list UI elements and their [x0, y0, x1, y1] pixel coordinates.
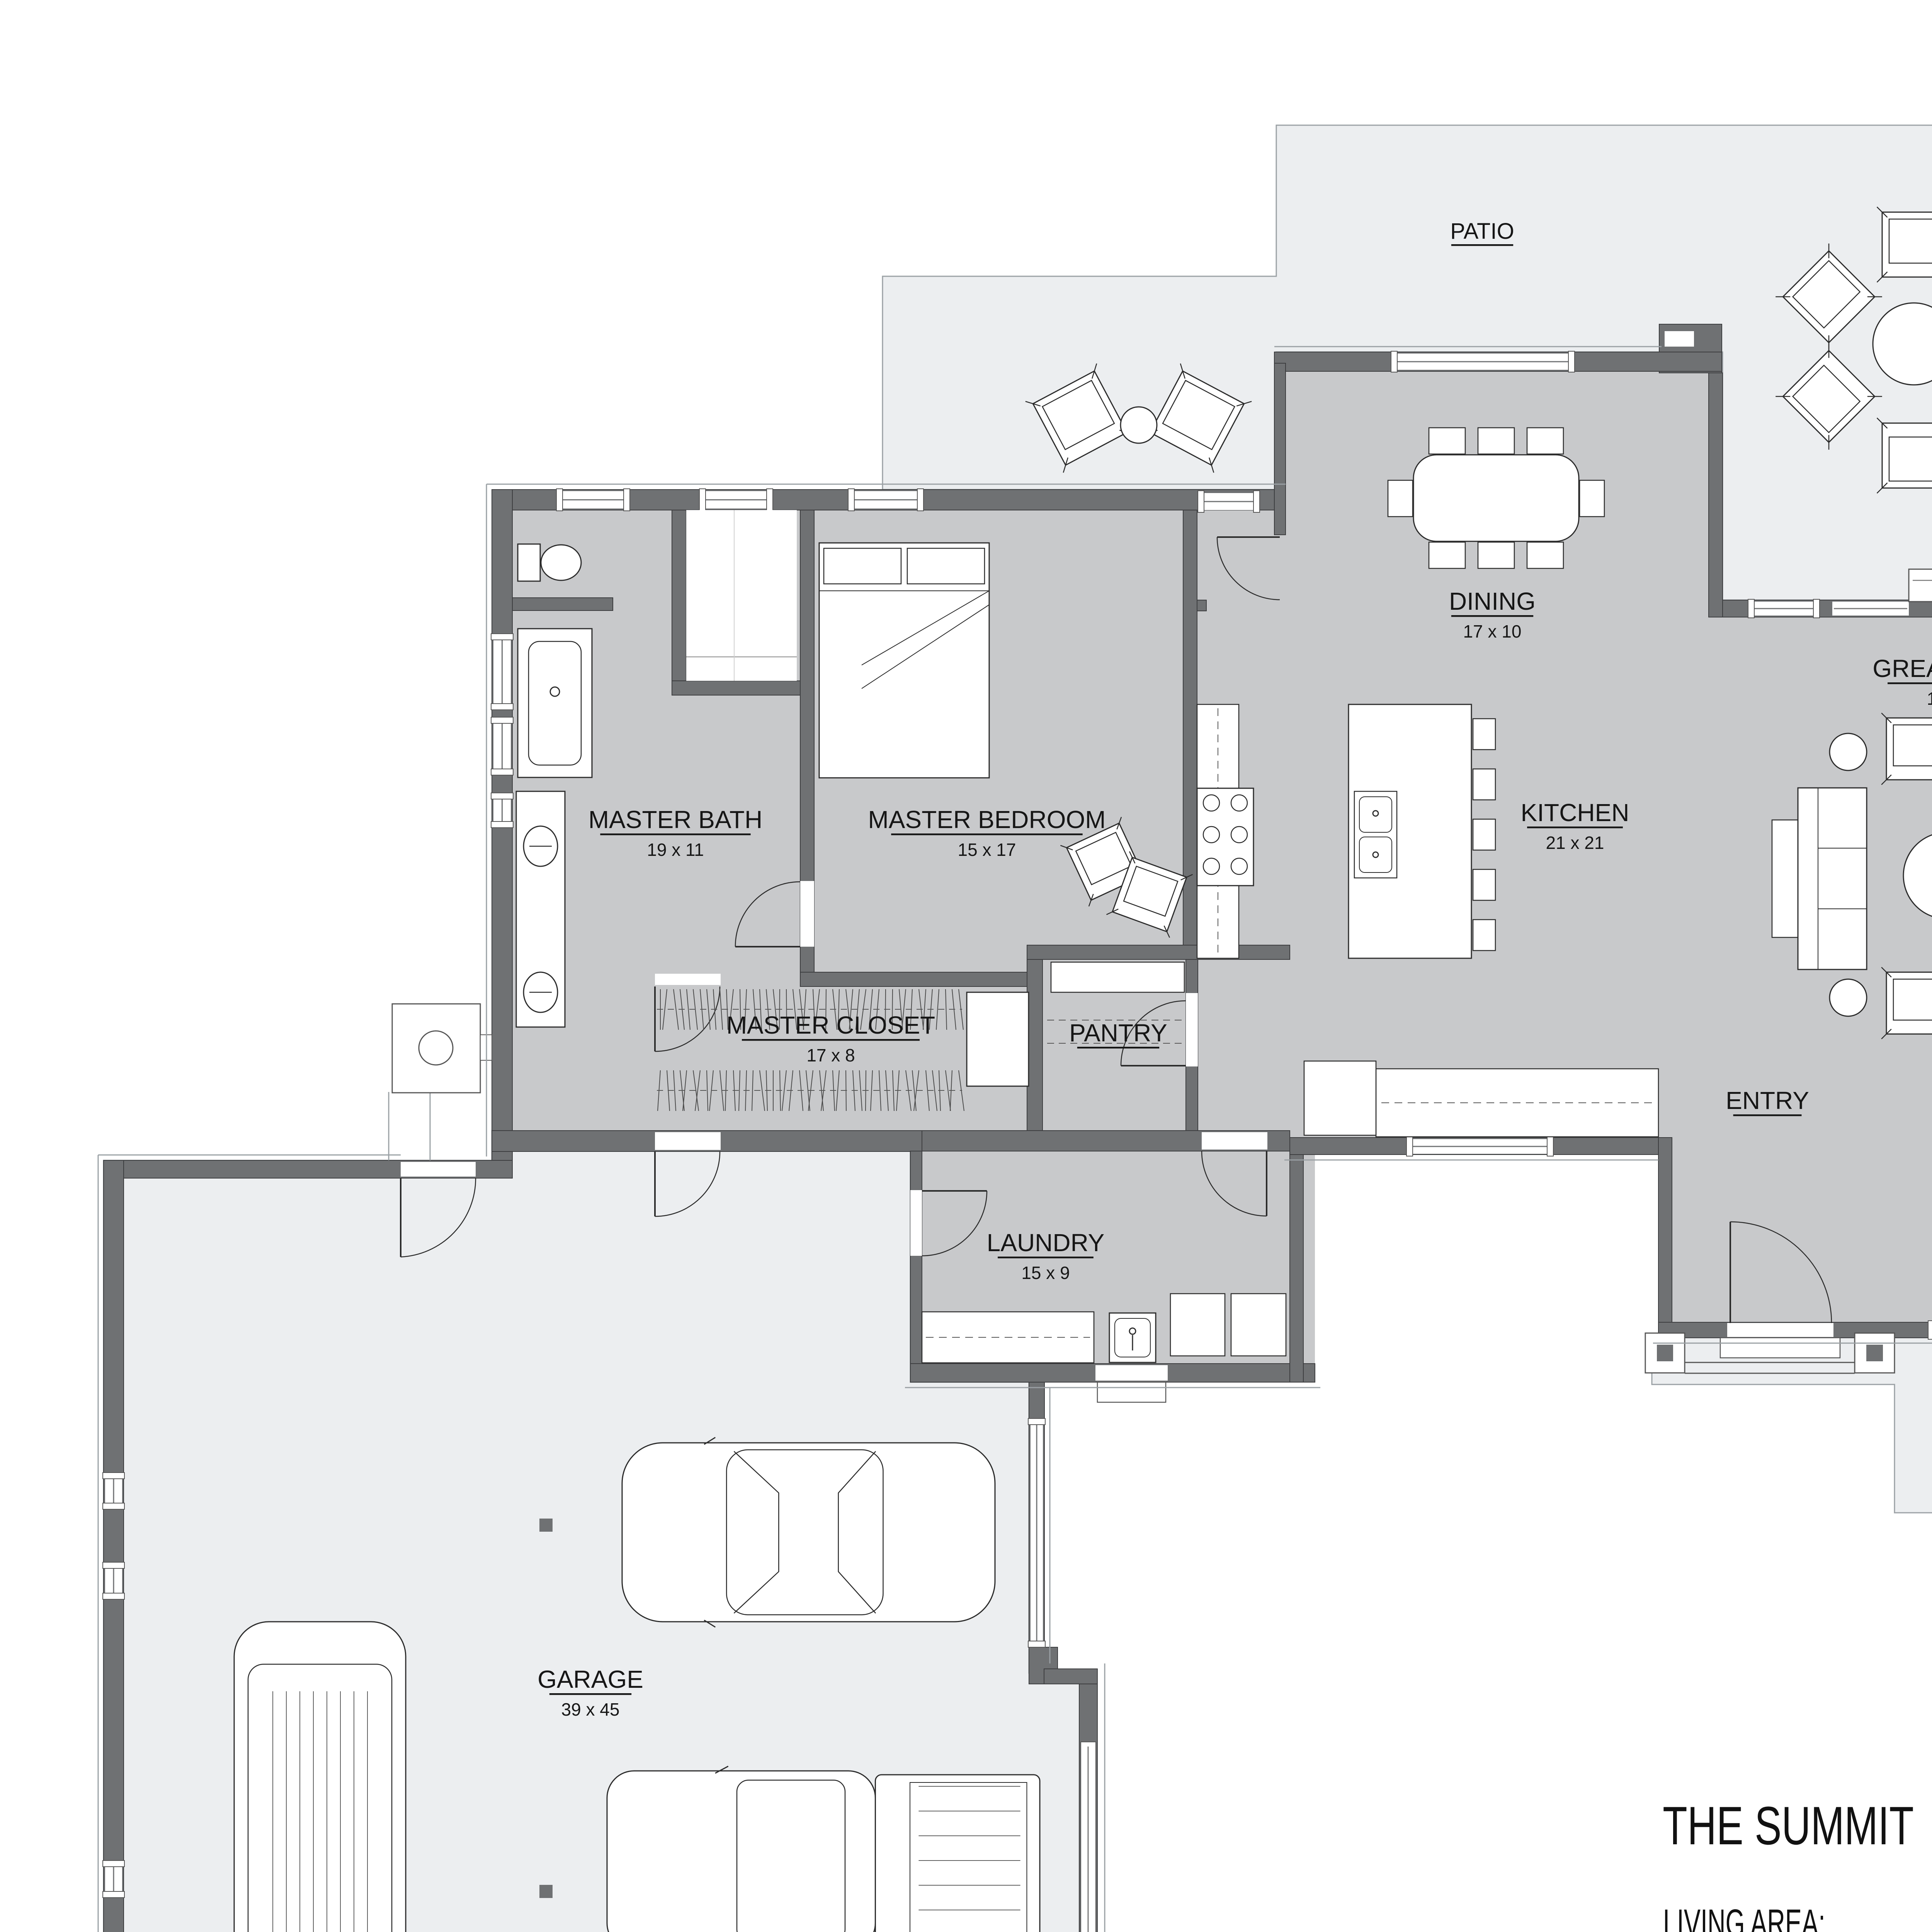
- svg-text:PANTRY: PANTRY: [1069, 1019, 1167, 1047]
- svg-text:21 x 21: 21 x 21: [1546, 833, 1604, 853]
- svg-text:15 x 17: 15 x 17: [958, 840, 1016, 860]
- svg-text:KITCHEN: KITCHEN: [1521, 799, 1629, 827]
- svg-text:GARAGE: GARAGE: [537, 1665, 643, 1693]
- svg-text:39 x 45: 39 x 45: [561, 1699, 620, 1719]
- svg-text:MASTER CLOSET: MASTER CLOSET: [726, 1011, 935, 1039]
- svg-text:MASTER BEDROOM: MASTER BEDROOM: [868, 806, 1105, 833]
- svg-text:15 x 9: 15 x 9: [1021, 1263, 1070, 1283]
- svg-text:GREAT ROOM: GREAT ROOM: [1872, 655, 1932, 682]
- svg-text:19 x 11: 19 x 11: [647, 840, 704, 860]
- svg-text:17 x 10: 17 x 10: [1463, 621, 1522, 641]
- svg-text:MASTER BATH: MASTER BATH: [588, 806, 762, 833]
- svg-text:PATIO: PATIO: [1450, 219, 1514, 244]
- svg-text:ENTRY: ENTRY: [1726, 1087, 1809, 1114]
- svg-text:19 x 21: 19 x 21: [1927, 689, 1932, 709]
- svg-text:DINING: DINING: [1449, 587, 1536, 615]
- svg-text:THE SUMMIT: THE SUMMIT: [1663, 1795, 1914, 1856]
- svg-text:17 x 8: 17 x 8: [806, 1045, 855, 1065]
- svg-text:LAUNDRY: LAUNDRY: [987, 1229, 1105, 1257]
- svg-text:LIVING AREA:: LIVING AREA:: [1663, 1901, 1825, 1932]
